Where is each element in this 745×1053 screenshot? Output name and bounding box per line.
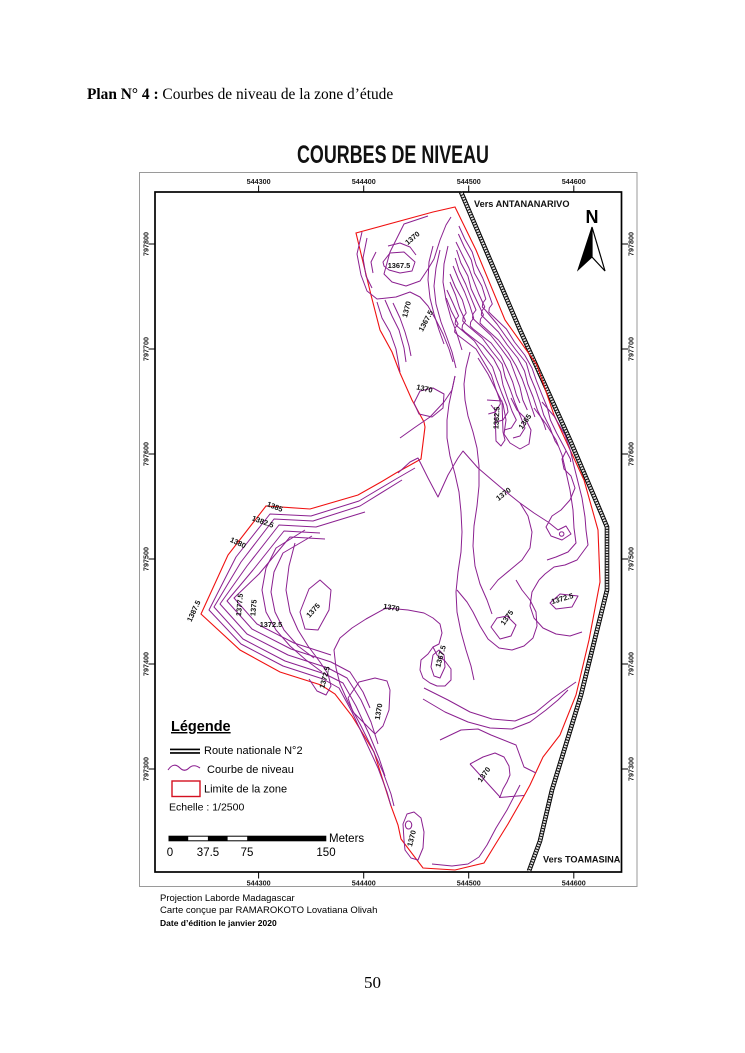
svg-text:1372.5: 1372.5 [317, 665, 332, 689]
svg-text:1375: 1375 [304, 601, 322, 619]
svg-text:797500: 797500 [626, 547, 635, 571]
svg-text:797800: 797800 [626, 232, 635, 256]
svg-text:544600: 544600 [562, 177, 586, 186]
svg-text:1375: 1375 [248, 599, 258, 616]
svg-text:544500: 544500 [457, 177, 481, 186]
svg-text:Vers TOAMASINA: Vers TOAMASINA [543, 855, 621, 865]
svg-text:N: N [586, 207, 599, 227]
svg-text:1385: 1385 [266, 499, 285, 514]
svg-text:Vers ANTANANARIVO: Vers ANTANANARIVO [474, 199, 569, 209]
svg-text:1370: 1370 [405, 829, 418, 847]
svg-text:797300: 797300 [626, 757, 635, 781]
svg-text:1367.5: 1367.5 [417, 309, 436, 333]
svg-text:1370: 1370 [494, 485, 513, 502]
svg-text:1382.5: 1382.5 [251, 514, 275, 530]
svg-text:75: 75 [241, 847, 254, 859]
svg-text:0: 0 [167, 847, 173, 859]
svg-text:1372.5: 1372.5 [550, 591, 574, 606]
svg-text:Echelle : 1/2500: Echelle : 1/2500 [169, 802, 244, 814]
svg-text:797300: 797300 [141, 757, 150, 781]
svg-text:797700: 797700 [141, 337, 150, 361]
svg-text:544300: 544300 [247, 177, 271, 186]
svg-text:Légende: Légende [171, 719, 231, 735]
svg-text:1370: 1370 [400, 300, 413, 318]
svg-text:797600: 797600 [626, 442, 635, 466]
svg-text:797600: 797600 [141, 442, 150, 466]
svg-text:37.5: 37.5 [197, 847, 219, 859]
svg-text:544400: 544400 [352, 879, 376, 888]
svg-text:797500: 797500 [141, 547, 150, 571]
svg-text:1372.5: 1372.5 [260, 620, 283, 629]
svg-text:797400: 797400 [141, 652, 150, 676]
svg-text:1367.5: 1367.5 [433, 644, 448, 668]
svg-text:Meters: Meters [329, 833, 364, 845]
svg-text:1370: 1370 [403, 229, 421, 246]
svg-text:797700: 797700 [626, 337, 635, 361]
svg-text:1380: 1380 [229, 535, 248, 550]
svg-text:Limite de la zone: Limite de la zone [204, 784, 287, 796]
svg-text:544300: 544300 [247, 879, 271, 888]
svg-text:150: 150 [316, 847, 335, 859]
svg-text:797400: 797400 [626, 652, 635, 676]
svg-text:1375: 1375 [499, 608, 516, 627]
svg-text:1377.5: 1377.5 [234, 593, 245, 616]
svg-text:1365: 1365 [517, 412, 534, 431]
svg-text:544600: 544600 [562, 879, 586, 888]
svg-text:1370: 1370 [416, 382, 434, 394]
svg-text:544500: 544500 [457, 879, 481, 888]
svg-text:Courbe de niveau: Courbe de niveau [207, 764, 294, 776]
svg-text:1367.5: 1367.5 [388, 261, 411, 270]
svg-text:Route nationale N°2: Route nationale N°2 [204, 745, 303, 757]
svg-text:1387.5: 1387.5 [185, 599, 203, 623]
svg-text:1370: 1370 [383, 602, 401, 614]
svg-text:797800: 797800 [141, 232, 150, 256]
svg-text:1370: 1370 [476, 765, 493, 784]
svg-text:544400: 544400 [352, 177, 376, 186]
svg-text:1370: 1370 [373, 703, 385, 721]
svg-text:1362.5: 1362.5 [491, 406, 501, 429]
